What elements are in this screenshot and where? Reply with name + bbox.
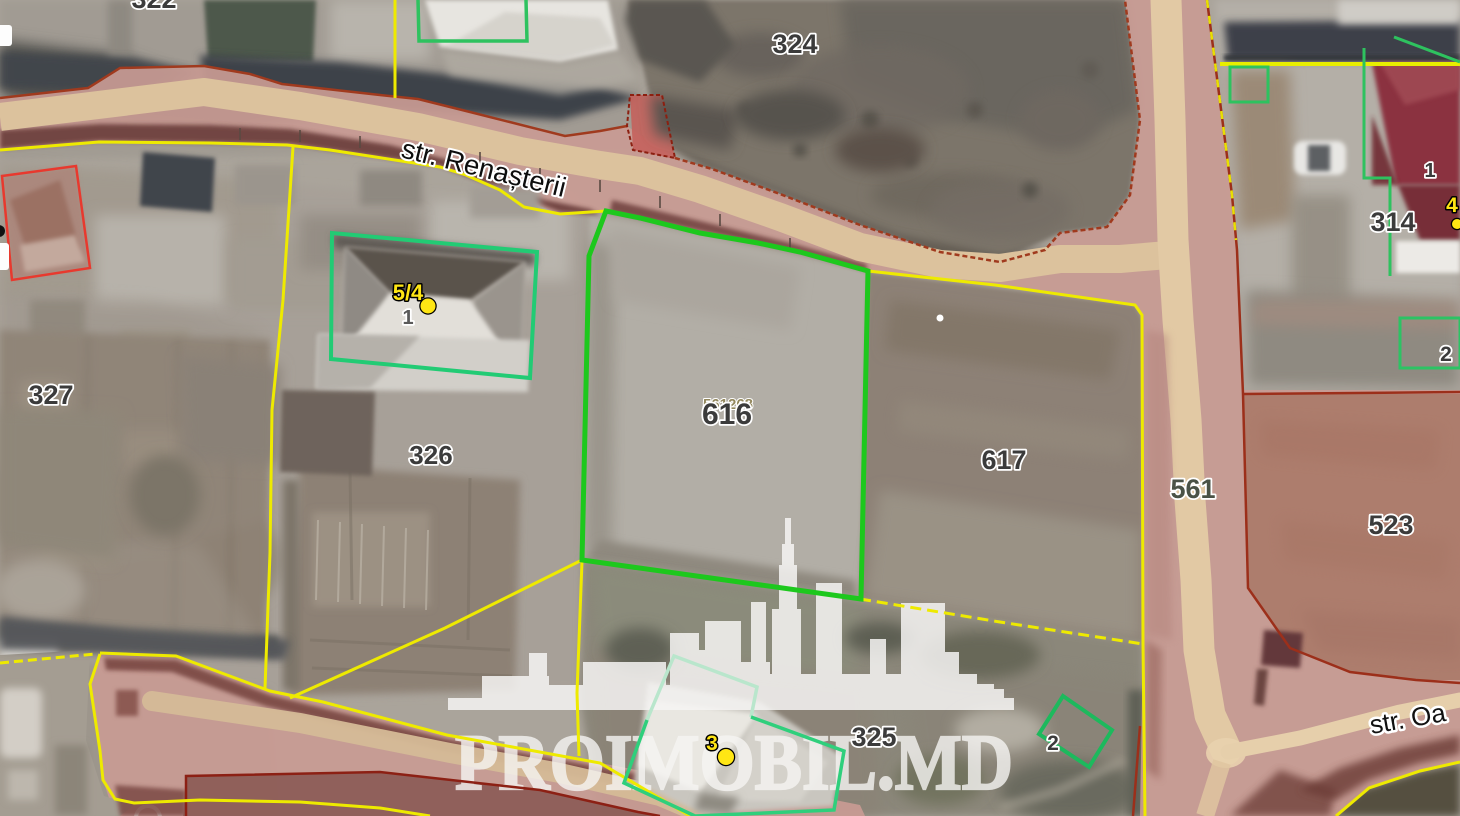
svg-text:326: 326 xyxy=(409,440,452,470)
svg-text:PROIMOBIL.MD: PROIMOBIL.MD xyxy=(455,720,1013,807)
svg-text:561: 561 xyxy=(1170,474,1215,504)
svg-text:2: 2 xyxy=(1440,343,1452,366)
svg-text:4: 4 xyxy=(1446,194,1458,217)
svg-text:314: 314 xyxy=(1370,207,1415,237)
svg-text:325: 325 xyxy=(851,722,896,752)
svg-text:2: 2 xyxy=(1047,732,1059,755)
svg-text:523: 523 xyxy=(1368,510,1413,540)
svg-text:324: 324 xyxy=(772,29,817,59)
svg-text:327: 327 xyxy=(28,380,73,410)
svg-text:617: 617 xyxy=(981,445,1026,475)
svg-text:1: 1 xyxy=(402,307,413,329)
svg-text:1: 1 xyxy=(1424,160,1435,182)
svg-text:3: 3 xyxy=(706,732,718,755)
svg-text:616: 616 xyxy=(702,398,752,431)
svg-text:322: 322 xyxy=(131,0,176,14)
svg-text:5/4: 5/4 xyxy=(393,280,424,305)
